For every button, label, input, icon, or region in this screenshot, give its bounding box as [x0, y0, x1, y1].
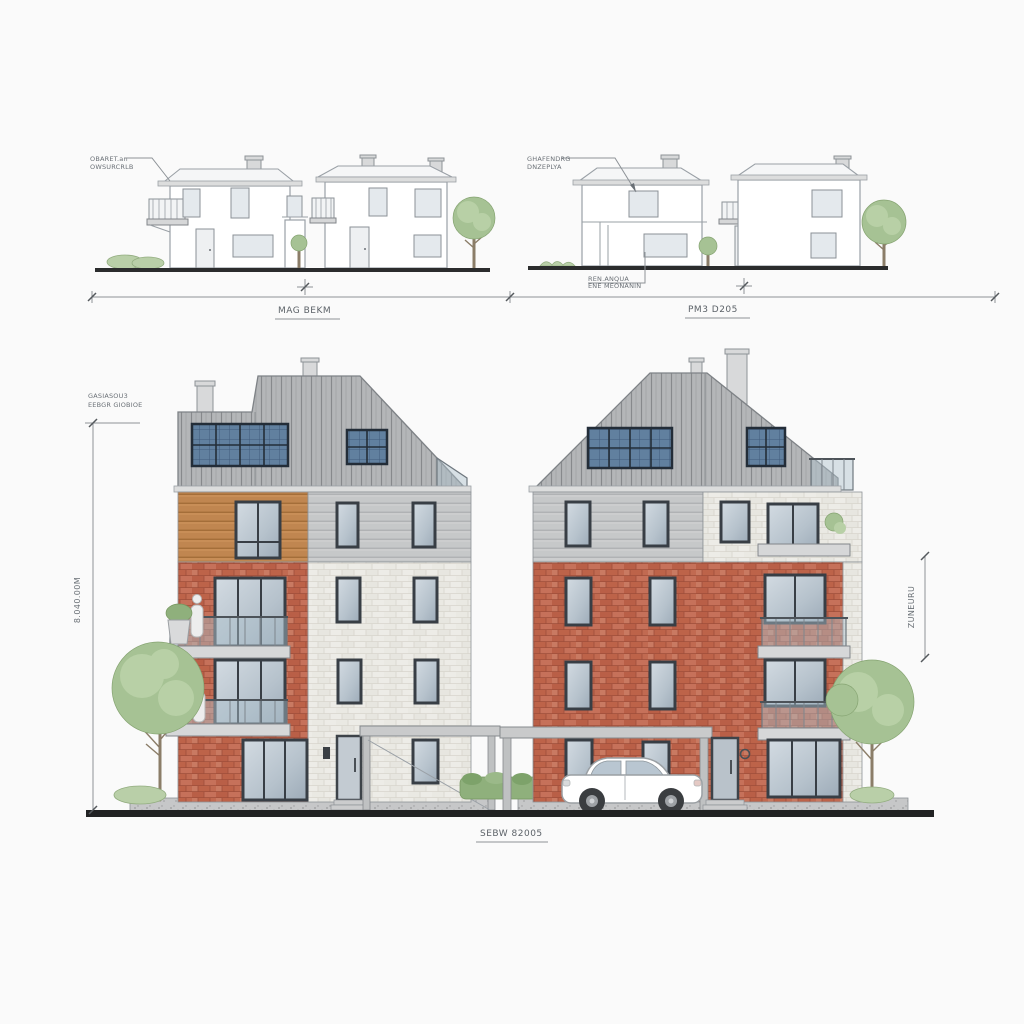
white-brick-facade	[308, 562, 471, 802]
ground-line	[86, 810, 934, 817]
note-text: OBARET.an	[90, 155, 128, 163]
chimney-cap	[725, 349, 749, 354]
solar-panel-array	[588, 428, 672, 468]
hipped-roof	[318, 166, 452, 177]
main-elevation: GASIASOU3 EEBGR GIOBIOE 8.040.00M ZUNEUR…	[73, 349, 934, 842]
grass	[540, 262, 575, 267]
drawing-canvas: OBARET.an OWSURCRLB	[0, 0, 1024, 1024]
window	[414, 235, 441, 257]
note-text: GHAFENDRG	[527, 155, 570, 163]
window	[337, 578, 360, 622]
chimney-cap	[245, 156, 263, 160]
window	[644, 234, 687, 257]
chimney-cap	[301, 358, 319, 362]
upper-left-elevation: OBARET.an OWSURCRLB	[90, 155, 495, 272]
vertical-dimension-text: ZUNEURU	[907, 586, 916, 628]
door	[350, 227, 369, 268]
entry-door	[712, 738, 738, 800]
window	[765, 575, 825, 623]
note-text: EEBGR GIOBIOE	[88, 401, 142, 409]
door-handle	[364, 248, 366, 250]
note-text: OWSURCRLB	[90, 163, 134, 171]
note-text: GASIASOU3	[88, 392, 128, 400]
window	[231, 188, 249, 218]
right-building	[500, 349, 862, 812]
window	[768, 740, 840, 797]
note-text: DNZEPLYA	[527, 163, 562, 171]
main-drawing-label: SEBW 82005	[476, 829, 548, 842]
window	[287, 196, 302, 217]
balcony-slab	[758, 544, 850, 556]
window	[369, 188, 387, 216]
upper-left-drawing-label: MAG BEKM	[278, 306, 331, 316]
chimney-cap	[195, 381, 215, 386]
horizontal-dimension-line: MAG BEKM PM3 D205	[88, 278, 999, 319]
bush	[132, 257, 164, 269]
window	[415, 660, 438, 703]
survey-cross	[297, 279, 313, 295]
entry-steps	[331, 800, 367, 810]
solar-panel-array	[747, 428, 785, 466]
window	[566, 662, 591, 709]
balcony	[310, 198, 336, 223]
window	[650, 662, 675, 709]
left-building	[166, 358, 500, 810]
window	[414, 578, 437, 622]
roof-fascia	[158, 181, 302, 186]
window	[650, 578, 675, 625]
window	[413, 740, 438, 783]
balcony	[758, 618, 850, 658]
elevation-drawing-sheet: OBARET.an OWSURCRLB	[0, 0, 1024, 1024]
window	[644, 502, 668, 546]
window	[415, 189, 441, 217]
small-tree	[291, 235, 307, 251]
siding-band	[308, 492, 471, 562]
window	[765, 660, 825, 706]
window	[243, 740, 307, 800]
tree	[862, 200, 906, 266]
upper-right-elevation: GHAFENDRG DNZEPLYA REN.ANQUA ENE MEONANI…	[527, 155, 906, 290]
window	[183, 189, 200, 217]
upper-right-drawing-label: PM3 D205	[688, 305, 738, 315]
window	[811, 233, 836, 258]
roof-terrace-balustrade	[809, 459, 855, 490]
roof-fascia	[573, 180, 709, 185]
small-tree	[699, 237, 717, 255]
pitched-roof	[533, 373, 838, 490]
window	[338, 660, 361, 703]
vertical-dimension-text: 8.040.00M	[73, 577, 82, 623]
window	[413, 503, 435, 547]
siding-band	[533, 492, 703, 562]
chimney-cap	[689, 358, 704, 362]
window	[236, 502, 280, 558]
roof-fascia	[174, 486, 471, 492]
window	[566, 502, 590, 546]
ground-line	[95, 268, 490, 272]
window	[566, 578, 591, 625]
solar-panel-array	[347, 430, 387, 464]
doorbell-panel	[323, 747, 330, 759]
door	[196, 229, 214, 268]
survey-cross	[736, 278, 752, 294]
hedge	[460, 772, 544, 799]
door-handle	[209, 249, 211, 251]
solar-panel-array	[192, 424, 288, 466]
right-dimension: ZUNEURU	[907, 552, 929, 662]
window	[233, 235, 273, 257]
roof-balustrade	[437, 458, 467, 490]
window	[721, 502, 749, 542]
roof-fascia	[316, 177, 456, 182]
label-text: SEBW 82005	[480, 829, 543, 839]
chimney	[197, 386, 213, 414]
ground-line	[528, 266, 888, 270]
window	[629, 191, 658, 217]
balcony-figure	[191, 595, 203, 638]
planter	[166, 604, 192, 644]
chimney-cap	[661, 155, 679, 159]
roof-fascia	[731, 175, 867, 180]
left-dimension: GASIASOU3 EEBGR GIOBIOE 8.040.00M	[73, 392, 142, 814]
entry-door	[337, 736, 361, 800]
window	[337, 503, 358, 547]
callout-note: OBARET.an OWSURCRLB	[90, 155, 170, 181]
entry-steps	[703, 800, 747, 810]
tree	[453, 197, 495, 268]
roof-fascia	[529, 486, 841, 492]
window	[812, 190, 842, 217]
